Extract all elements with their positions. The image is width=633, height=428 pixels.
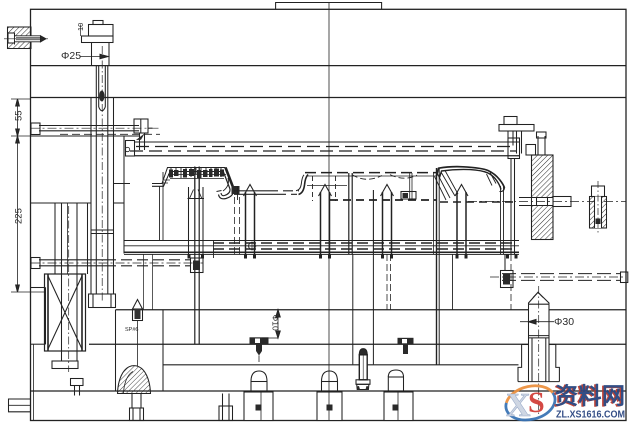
svg-text:SP#6: SP#6 <box>125 327 138 333</box>
svg-text:ZL.XS1616.COM: ZL.XS1616.COM <box>556 409 625 421</box>
svg-text:225: 225 <box>14 208 25 224</box>
svg-text:Φ25: Φ25 <box>61 50 81 62</box>
svg-text:55: 55 <box>14 110 25 121</box>
svg-text:Φ10: Φ10 <box>271 315 281 332</box>
svg-text:S: S <box>528 386 545 419</box>
svg-text:资料网: 资料网 <box>555 383 626 409</box>
svg-text:Φ30: Φ30 <box>554 316 574 328</box>
